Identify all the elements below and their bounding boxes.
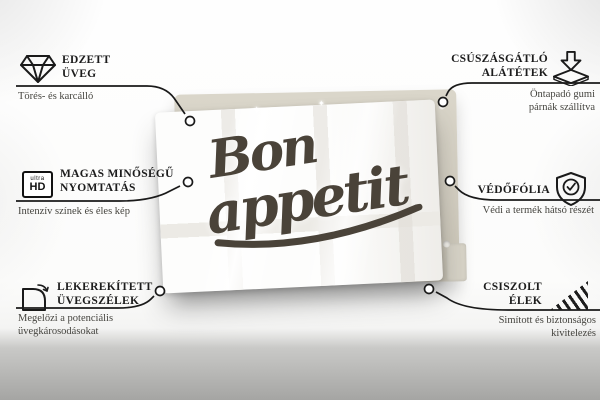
callout-subtext: Törés- és karcálló <box>18 91 93 104</box>
callout-subtext: Öntapadó gumi <box>529 89 595 102</box>
backing-board-tab <box>446 243 467 281</box>
callout-title: ÜVEG <box>62 68 110 82</box>
callout-print-quality: MAGAS MINŐSÉGŰ NYOMTATÁS <box>60 168 174 195</box>
callout-title: LEKEREKÍTETT <box>57 281 153 295</box>
polished-edge-hatch-icon <box>550 281 588 310</box>
callout-subtext: párnák szállítva <box>529 102 595 115</box>
callout-subtext: Intenzív színek és éles kép <box>18 206 130 219</box>
sparkle-icon: ✦ <box>252 104 261 117</box>
callout-rounded-edges: LEKEREKÍTETT ÜVEGSZÉLEK <box>57 281 153 308</box>
product-infographic: Bon appetit ✦ ✦ EDZETT ÜVEG Törés- és ka… <box>0 0 600 400</box>
callout-title: MAGAS MINŐSÉGŰ <box>60 168 174 182</box>
ultra-hd-icon-text: HD <box>30 182 46 193</box>
mounting-hole <box>438 103 445 110</box>
callout-tempered-glass-sub: Törés- és karcálló <box>18 91 93 104</box>
panel-artwork: Bon appetit <box>155 100 443 294</box>
callout-title: CSÚSZÁSGÁTLÓ <box>451 53 548 67</box>
callout-subtext: Simított és biztonságos <box>499 315 596 328</box>
callout-protective-film-sub: Védi a termék hátsó részét <box>483 205 594 218</box>
callout-title: NYOMTATÁS <box>60 182 174 196</box>
anti-slip-pad-icon <box>550 50 592 91</box>
callout-subtext: kivitelezés <box>499 328 596 341</box>
callout-title: EDZETT <box>62 54 110 68</box>
callout-subtext: Védi a termék hátsó részét <box>483 205 594 218</box>
callout-title: ÉLEK <box>483 295 542 309</box>
sparkle-icon: ✦ <box>318 99 325 108</box>
callout-anti-slip: CSÚSZÁSGÁTLÓ ALÁTÉTEK <box>451 53 548 80</box>
ultra-hd-icon: ultra HD <box>22 171 53 198</box>
callout-protective-film: VÉDŐFÓLIA <box>478 184 550 198</box>
callout-subtext: üvegkárosodásokat <box>18 326 113 339</box>
callout-tempered-glass: EDZETT ÜVEG <box>62 54 110 81</box>
callout-print-quality-sub: Intenzív színek és éles kép <box>18 206 130 219</box>
callout-title: VÉDŐFÓLIA <box>478 184 550 198</box>
callout-title: ALÁTÉTEK <box>451 67 548 81</box>
callout-title: ÜVEGSZÉLEK <box>57 295 153 309</box>
glass-panel: Bon appetit <box>155 100 443 294</box>
callout-anti-slip-sub: Öntapadó gumi párnák szállítva <box>529 89 595 114</box>
callout-title: CSISZOLT <box>483 281 542 295</box>
callout-polished-edges: CSISZOLT ÉLEK <box>483 281 542 308</box>
diamond-icon <box>18 53 58 90</box>
callout-rounded-edges-sub: Megelőzi a potenciális üvegkárosodásokat <box>18 313 113 338</box>
callout-polished-edges-sub: Simított és biztonságos kivitelezés <box>499 315 596 340</box>
callout-subtext: Megelőzi a potenciális <box>18 313 113 326</box>
